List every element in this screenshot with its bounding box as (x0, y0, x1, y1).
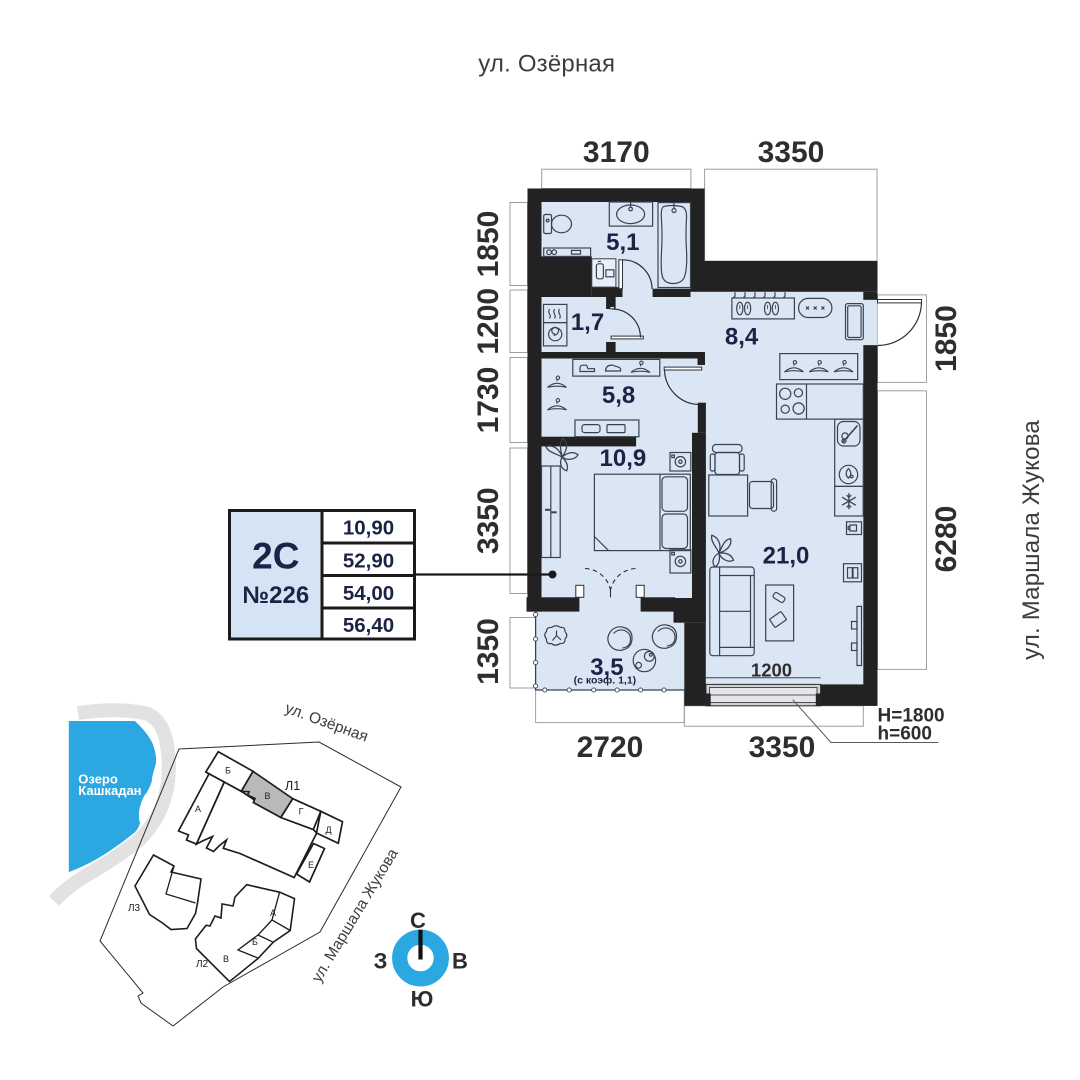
svg-text:(с коэф. 1,1): (с коэф. 1,1) (574, 675, 637, 687)
svg-text:1200: 1200 (751, 659, 792, 680)
svg-text:Л2: Л2 (196, 959, 209, 970)
svg-text:№226: №226 (242, 582, 309, 609)
svg-text:С: С (410, 908, 426, 933)
svg-text:52,90: 52,90 (343, 549, 394, 572)
svg-text:3350: 3350 (749, 731, 816, 764)
svg-text:А: А (270, 908, 276, 918)
svg-text:В: В (452, 949, 468, 974)
svg-text:ул. Маршала Жукова: ул. Маршала Жукова (1018, 420, 1045, 660)
svg-text:Г: Г (299, 807, 304, 817)
svg-text:10,90: 10,90 (343, 517, 394, 540)
svg-text:Л1: Л1 (285, 779, 300, 793)
svg-text:А: А (195, 804, 201, 814)
svg-text:Д: Д (325, 825, 331, 835)
svg-text:ул. Озёрная: ул. Озёрная (478, 51, 615, 78)
svg-text:3350: 3350 (758, 136, 825, 169)
svg-text:3170: 3170 (583, 136, 650, 169)
svg-text:Кашкадан: Кашкадан (78, 783, 141, 798)
svg-text:1730: 1730 (472, 367, 505, 434)
svg-text:6280: 6280 (930, 506, 963, 573)
svg-text:В: В (223, 954, 229, 964)
svg-text:З: З (374, 949, 388, 974)
svg-text:1850: 1850 (472, 211, 505, 278)
svg-text:2С: 2С (252, 536, 299, 577)
svg-text:Л3: Л3 (128, 903, 141, 914)
svg-text:8,4: 8,4 (725, 324, 759, 351)
svg-text:3350: 3350 (472, 487, 505, 554)
svg-text:В: В (264, 791, 270, 801)
svg-text:Ю: Ю (411, 987, 434, 1012)
svg-text:2720: 2720 (577, 731, 644, 764)
svg-text:1350: 1350 (472, 618, 505, 685)
svg-text:1200: 1200 (472, 288, 505, 355)
svg-text:h=600: h=600 (878, 724, 932, 745)
svg-text:54,00: 54,00 (343, 582, 394, 605)
svg-text:Б: Б (225, 766, 231, 776)
svg-text:5,1: 5,1 (606, 229, 639, 256)
svg-text:1850: 1850 (930, 305, 963, 372)
svg-text:Б: Б (252, 937, 258, 947)
svg-text:21,0: 21,0 (763, 543, 810, 570)
svg-text:10,9: 10,9 (600, 445, 647, 472)
svg-text:56,40: 56,40 (343, 614, 394, 637)
svg-text:1,7: 1,7 (571, 309, 604, 336)
svg-text:Е: Е (308, 860, 314, 870)
svg-text:5,8: 5,8 (602, 382, 635, 409)
